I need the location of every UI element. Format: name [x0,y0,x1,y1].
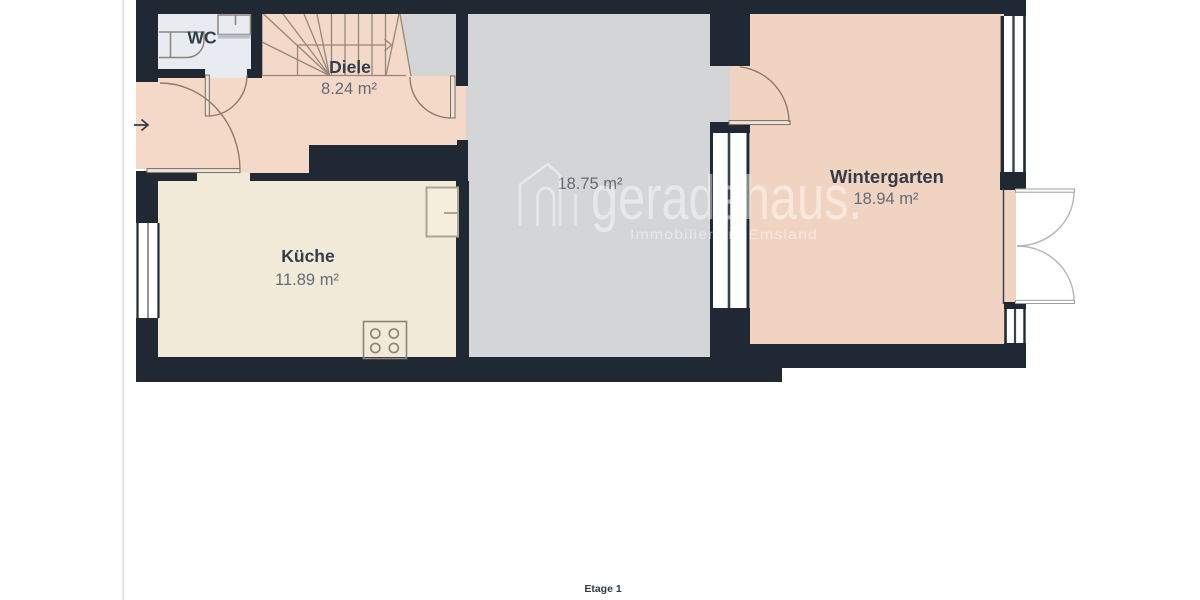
svg-text:8.24 m²: 8.24 m² [321,80,377,98]
svg-text:Immobilien im Emsland: Immobilien im Emsland [630,227,818,242]
svg-text:WC: WC [187,28,217,48]
svg-text:Etage 1: Etage 1 [584,583,622,595]
svg-text:Küche: Küche [281,246,335,266]
svg-text:geradehaus.: geradehaus. [591,164,862,233]
svg-text:Diele: Diele [329,57,371,77]
svg-text:11.89 m²: 11.89 m² [275,271,339,289]
svg-text:18.94 m²: 18.94 m² [853,190,919,208]
